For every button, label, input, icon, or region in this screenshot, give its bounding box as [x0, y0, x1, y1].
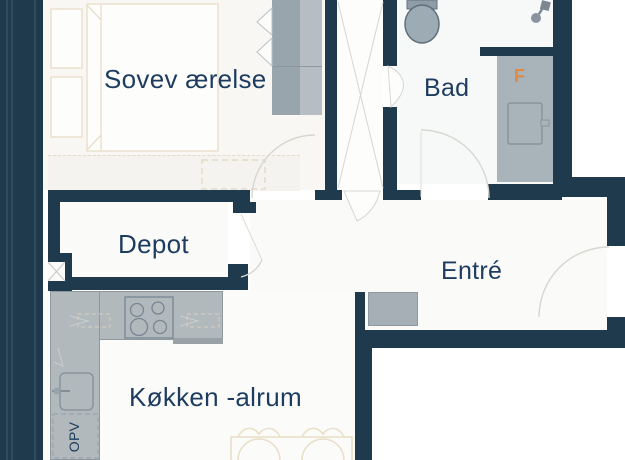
wall-bedroom-bottom	[48, 190, 250, 202]
wall-seam	[11, 0, 13, 460]
closet-band	[48, 155, 300, 191]
floor-plan: Sovev ærelse Bad Depot Entré Køkken -alr…	[0, 0, 625, 460]
wall-seam	[6, 0, 8, 460]
wall-entry-right-stub	[607, 197, 625, 246]
entry-cabinet	[368, 292, 418, 326]
wall-shaft-right-upper	[383, 0, 397, 66]
kitchen-counter-edge	[173, 338, 223, 344]
wall-kitchen-divider	[355, 330, 372, 460]
wardrobe-light-half	[300, 0, 322, 115]
wall-bath-bottom	[488, 184, 562, 200]
wall-storage-bottom	[60, 277, 248, 290]
dishwasher-label: OPV	[51, 413, 97, 460]
dishwasher-label-text: OPV	[66, 422, 82, 452]
wall-shaft-right-lower	[383, 107, 397, 200]
wardrobe-dark-half	[272, 0, 300, 115]
room-fill-shaft	[337, 0, 383, 200]
wall-bedroom-right	[325, 0, 337, 190]
wall-entry-bottom	[357, 330, 625, 348]
room-label-storage: Depot	[118, 229, 189, 260]
wall-cabinet-stub	[355, 292, 365, 332]
wall-shower-top	[480, 47, 553, 56]
wall-bedroom-door-stub	[315, 190, 342, 200]
wall-entry-top-right	[553, 177, 625, 197]
wall-bath-bottom-stub	[395, 190, 421, 200]
wall-bath-right	[553, 0, 572, 184]
wardrobe-divider	[272, 66, 322, 67]
wall-storage-door-post	[228, 264, 248, 290]
wall-hall-stub	[233, 202, 256, 213]
room-label-entrance: Entré	[441, 257, 502, 286]
room-label-bathroom: Bad	[424, 74, 469, 103]
wall-seam	[34, 0, 36, 460]
room-label-bedroom: Sovev ærelse	[104, 64, 267, 95]
room-label-kitchen: Køkken -alrum	[129, 382, 302, 413]
shower-fitting-label: F	[514, 66, 525, 87]
